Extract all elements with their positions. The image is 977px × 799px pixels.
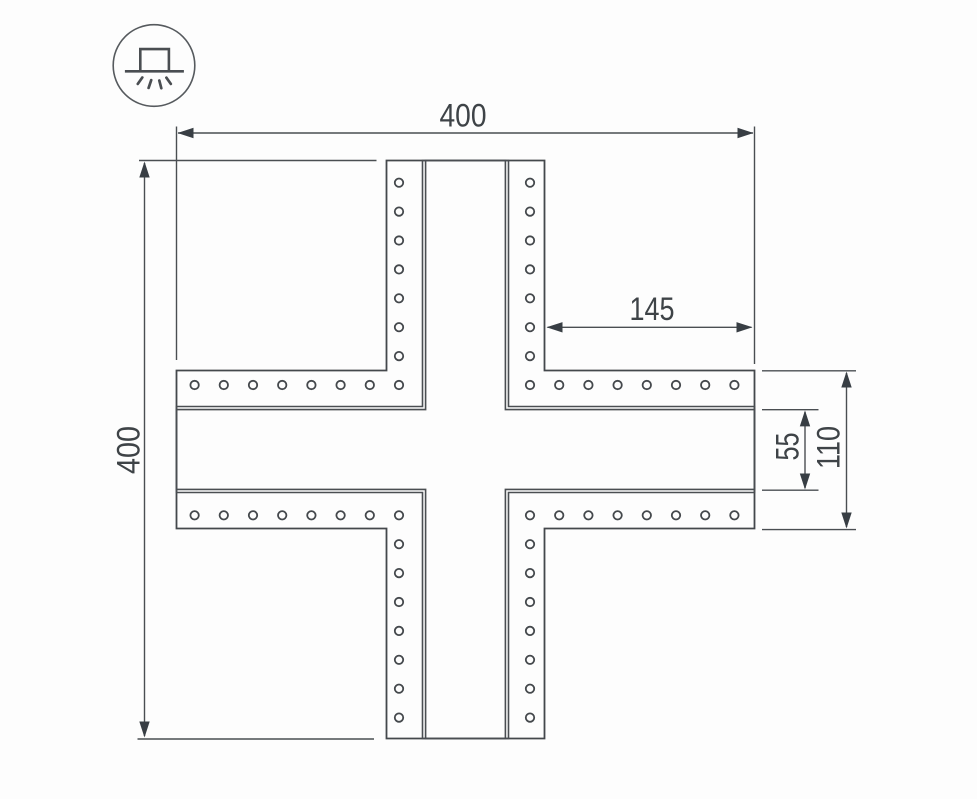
svg-text:400: 400 [111,426,147,474]
svg-text:145: 145 [630,291,675,327]
svg-text:110: 110 [811,426,847,469]
svg-text:400: 400 [440,98,487,134]
svg-text:55: 55 [770,433,806,461]
